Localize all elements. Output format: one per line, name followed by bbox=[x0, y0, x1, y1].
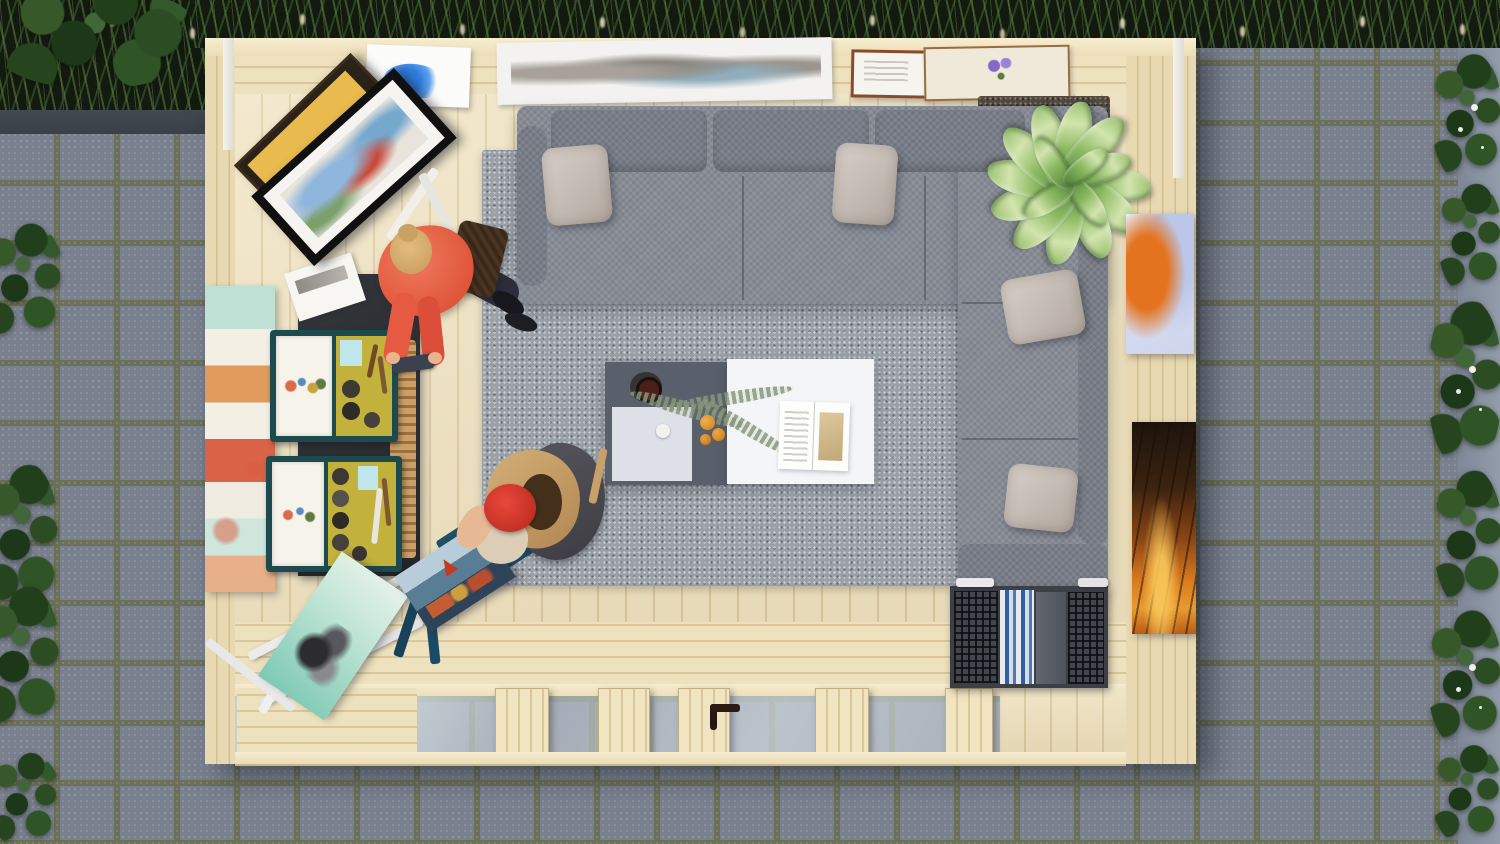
throw-pillow bbox=[1003, 463, 1079, 534]
magazine-rack bbox=[950, 586, 1108, 688]
orange-fruit bbox=[712, 428, 725, 441]
ivy-left bbox=[0, 584, 60, 734]
open-magazine bbox=[778, 401, 850, 471]
throw-pillow bbox=[831, 142, 898, 226]
paint-case bbox=[266, 456, 402, 572]
corner-trim-right bbox=[1173, 38, 1184, 178]
rack-handle bbox=[1078, 578, 1108, 587]
scene bbox=[0, 0, 1500, 844]
corner-trim-left bbox=[223, 38, 234, 150]
paint-case bbox=[270, 330, 398, 442]
throw-pillow bbox=[999, 268, 1087, 347]
print-gray-abstract bbox=[496, 37, 832, 105]
door-handle bbox=[710, 704, 740, 730]
blossom-canvas bbox=[1126, 214, 1194, 354]
ivy-right bbox=[1428, 608, 1500, 748]
orange-fruit bbox=[700, 434, 711, 445]
woman-hand bbox=[428, 352, 442, 364]
door-slab bbox=[598, 688, 650, 760]
hair-bun bbox=[398, 224, 418, 242]
ivy-right bbox=[1432, 744, 1500, 844]
bottom-sill bbox=[235, 752, 1126, 766]
house-plant bbox=[978, 98, 1148, 268]
door-slab bbox=[495, 688, 549, 760]
print-sketch bbox=[851, 49, 930, 98]
door-slab bbox=[945, 688, 993, 760]
ivy-right bbox=[1434, 468, 1500, 608]
door-slab bbox=[815, 688, 869, 760]
sofa-seat-seam bbox=[924, 176, 926, 300]
ivy-top-left bbox=[0, 0, 200, 88]
ivy-left bbox=[0, 752, 60, 844]
orange-fruit bbox=[700, 415, 715, 430]
sofa-seat-seam bbox=[962, 438, 1078, 440]
sunset-canvas bbox=[1132, 422, 1196, 634]
rack-handle bbox=[956, 578, 994, 587]
deck-right bbox=[1000, 688, 1126, 758]
ivy-right bbox=[1428, 298, 1500, 468]
red-beret bbox=[484, 484, 536, 532]
pastel-canvas bbox=[205, 286, 275, 592]
table-inset bbox=[612, 407, 692, 481]
ivy-right bbox=[1432, 52, 1500, 182]
ivy-right bbox=[1438, 182, 1500, 294]
woman-hand bbox=[386, 352, 400, 364]
print-botanical bbox=[924, 45, 1071, 102]
ivy-left bbox=[0, 222, 64, 342]
sofa-seat-seam bbox=[742, 176, 744, 300]
throw-pillow bbox=[541, 143, 614, 226]
small-vase bbox=[656, 424, 670, 438]
sofa-arm-left bbox=[517, 126, 547, 286]
